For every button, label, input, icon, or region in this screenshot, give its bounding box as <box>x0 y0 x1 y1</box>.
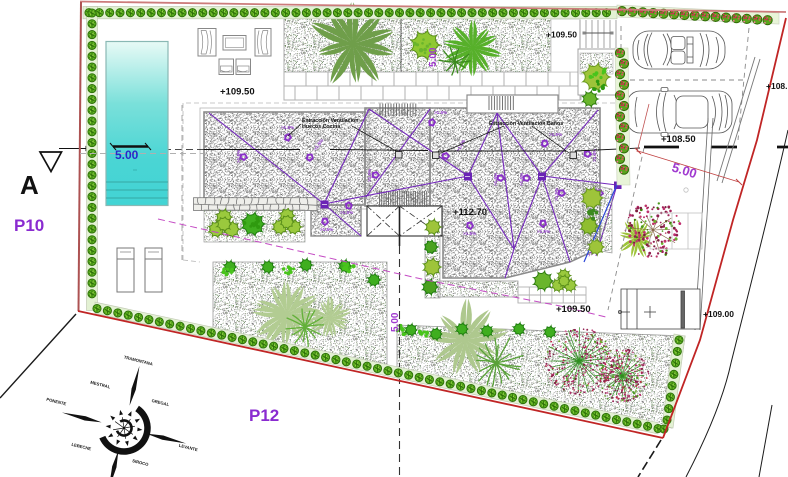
svg-text:>1.5%: >1.5% <box>554 188 559 201</box>
svg-text:>1.5%: >1.5% <box>236 150 241 163</box>
svg-text:>1.5%: >1.5% <box>281 125 294 130</box>
svg-text:+109.50: +109.50 <box>220 87 255 98</box>
svg-text:+109.50: +109.50 <box>556 304 591 315</box>
svg-text:+112.70: +112.70 <box>453 207 487 218</box>
svg-text:+109.00: +109.00 <box>703 309 734 319</box>
svg-text:>1.5%: >1.5% <box>367 169 372 182</box>
svg-text:>1.5%: >1.5% <box>592 149 597 162</box>
svg-text:5.00: 5.00 <box>390 312 401 332</box>
svg-text:>1.5%: >1.5% <box>340 210 353 215</box>
svg-text:P10: P10 <box>14 216 44 235</box>
svg-text:>1.5%: >1.5% <box>463 231 476 236</box>
svg-text:P12: P12 <box>249 406 279 425</box>
svg-text:+108.: +108. <box>766 81 788 91</box>
svg-text:Huecos Cocina: Huecos Cocina <box>302 124 340 130</box>
svg-text:>1.5%: >1.5% <box>320 227 333 232</box>
svg-text:>1.5%: >1.5% <box>549 132 562 137</box>
svg-text:A: A <box>20 170 39 200</box>
svg-text:5.00: 5.00 <box>428 47 439 67</box>
svg-text:>1.5%: >1.5% <box>537 229 550 234</box>
svg-text:Extracción Ventilación Baños: Extracción Ventilación Baños <box>489 121 563 127</box>
svg-text:5.00: 5.00 <box>115 148 139 162</box>
svg-text:+108.50: +108.50 <box>661 134 696 145</box>
svg-text:>1.5%: >1.5% <box>493 173 498 186</box>
svg-text:+109.50: +109.50 <box>546 30 577 40</box>
svg-text:>1.5%: >1.5% <box>434 110 447 115</box>
svg-text:>1.5%: >1.5% <box>519 173 524 186</box>
